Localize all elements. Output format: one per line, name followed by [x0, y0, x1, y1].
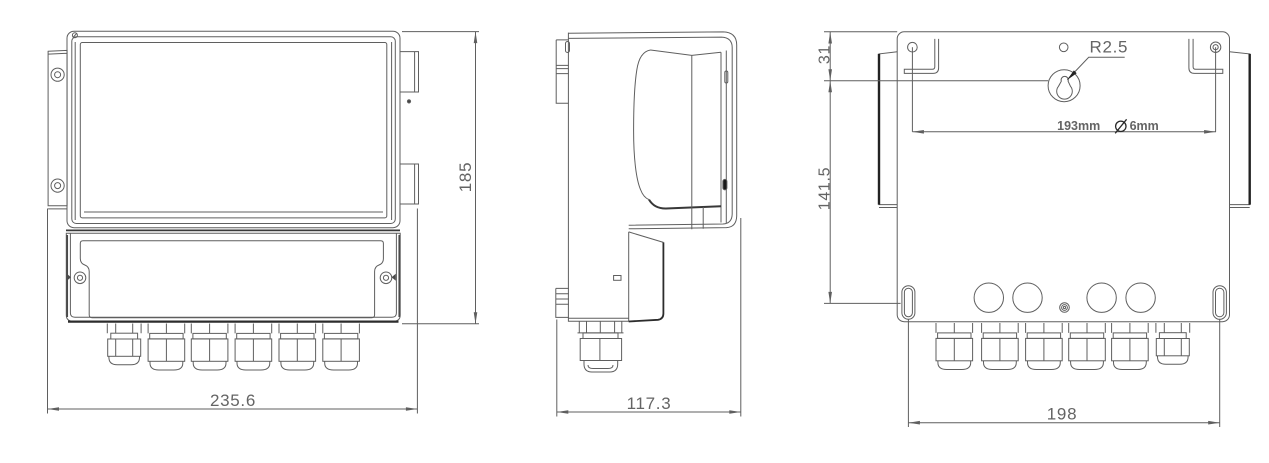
svg-text:193mm: 193mm	[1057, 119, 1100, 133]
svg-text:235.6: 235.6	[210, 391, 256, 410]
svg-text:185: 185	[456, 162, 475, 192]
svg-text:6mm: 6mm	[1130, 119, 1159, 133]
svg-text:R2.5: R2.5	[1090, 38, 1129, 57]
svg-text:198: 198	[1047, 405, 1077, 424]
svg-text:117.3: 117.3	[627, 394, 672, 413]
svg-text:141.5: 141.5	[816, 167, 833, 211]
svg-text:31: 31	[816, 45, 833, 64]
